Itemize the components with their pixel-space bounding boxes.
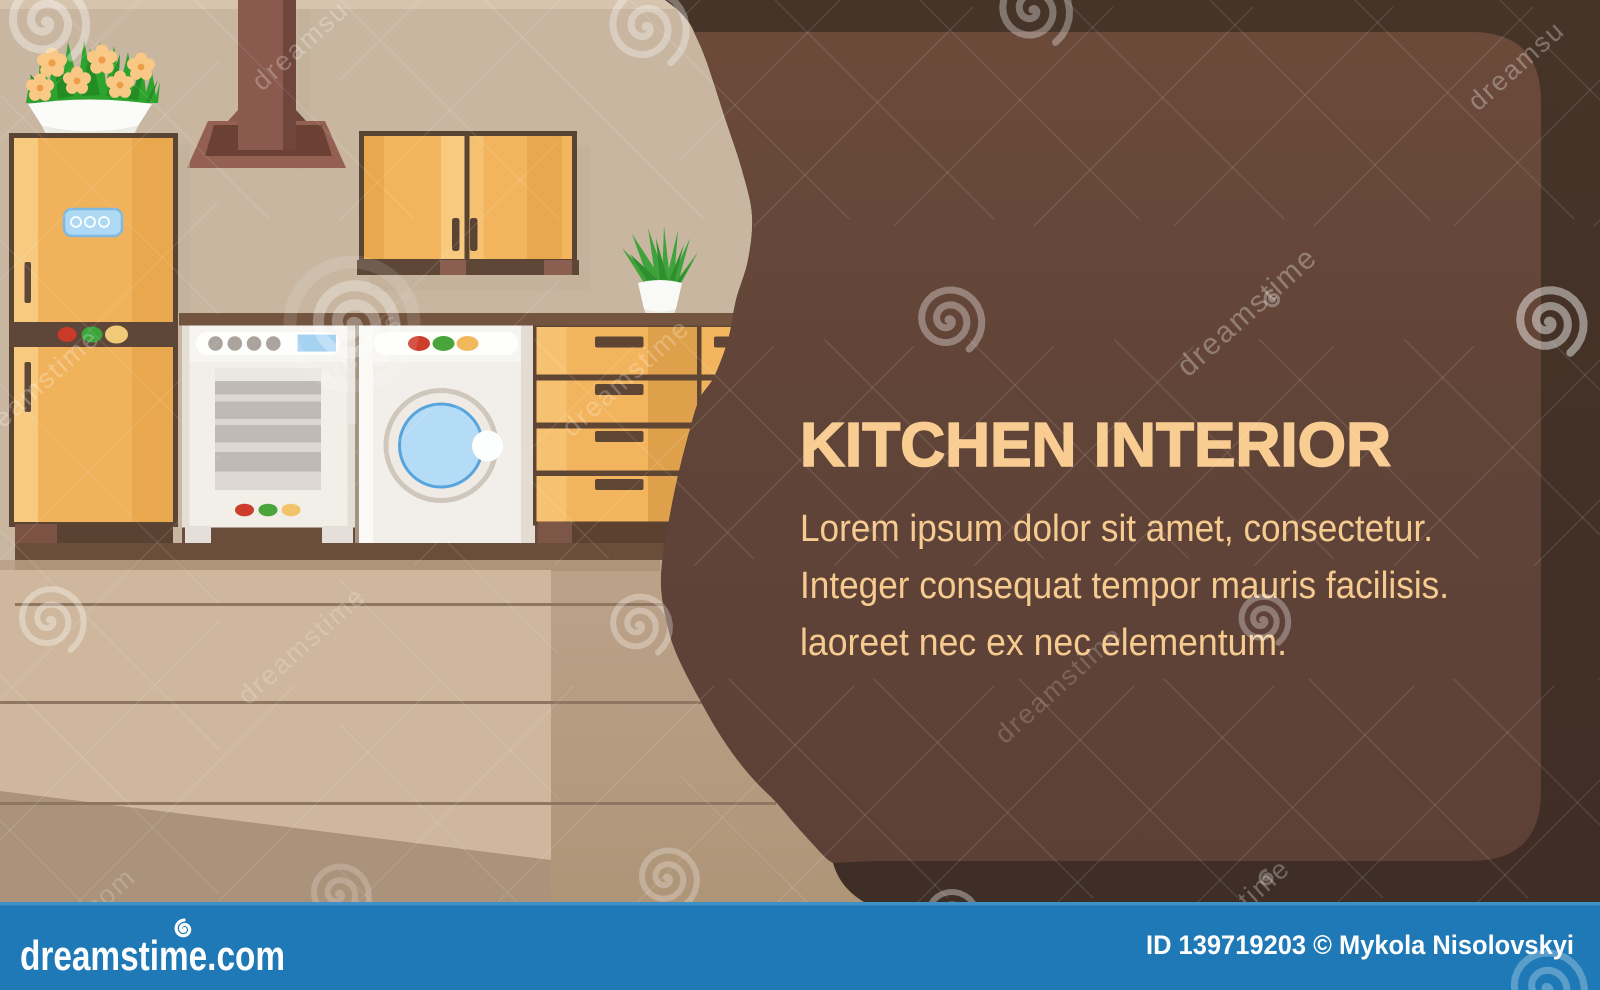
svg-text:Integer consequat tempor mauri: Integer consequat tempor mauris facilisi… [800, 565, 1449, 607]
svg-text:Lorem ipsum dolor sit amet, co: Lorem ipsum dolor sit amet, consectetur. [800, 508, 1433, 550]
svg-text:laoreet nec ex nec elementum.: laoreet nec ex nec elementum. [800, 622, 1287, 664]
svg-text:ID 139719203 © Mykola Nisolov: ID 139719203 © Mykola Nisolovskyi [1146, 930, 1574, 960]
svg-text:dreamstime.com: dreamstime.com [20, 932, 285, 979]
